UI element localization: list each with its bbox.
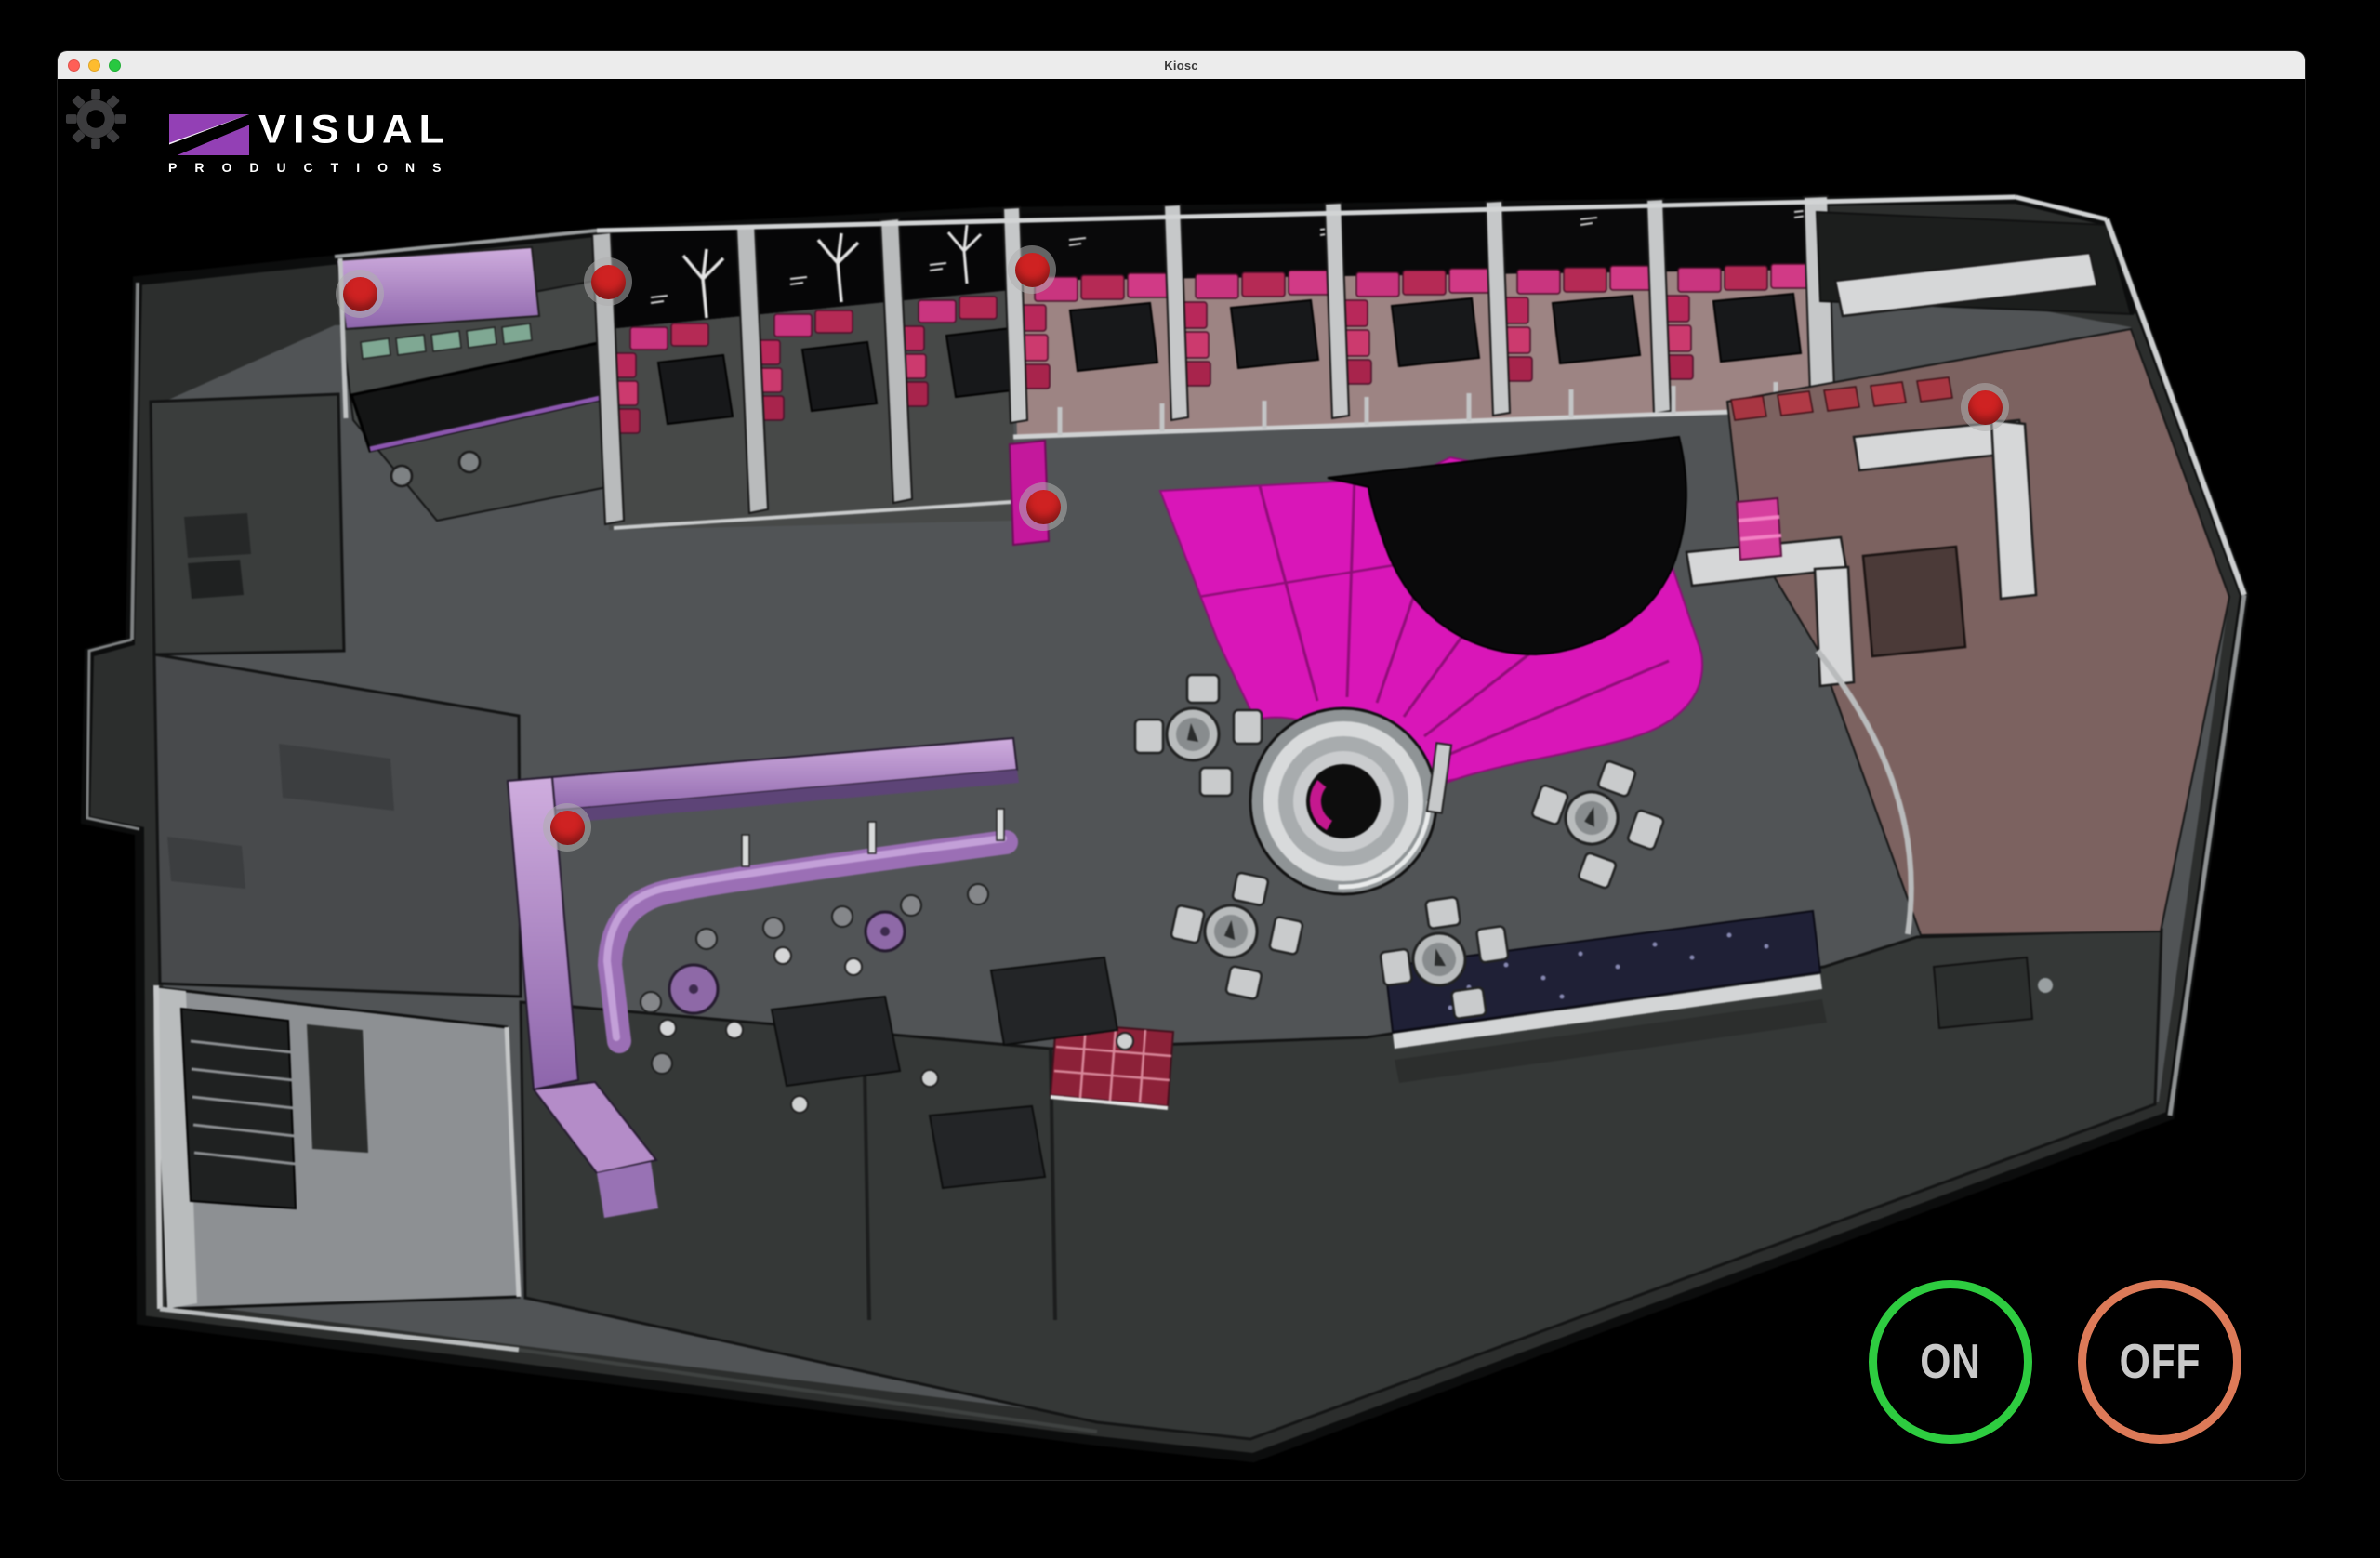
kitchen-room <box>153 987 519 1309</box>
zone-indicator-dot[interactable] <box>1008 245 1056 294</box>
window-title: Kiosc <box>58 59 2305 73</box>
off-button-label: OFF <box>2119 1334 2201 1390</box>
zoom-button[interactable] <box>109 59 121 72</box>
traffic-lights <box>58 59 121 72</box>
kiosc-window: Kiosc <box>58 51 2305 1480</box>
booth-row-left <box>592 212 1021 530</box>
minimize-button[interactable] <box>88 59 100 72</box>
lights-on-button[interactable]: ON <box>1869 1280 2032 1444</box>
zone-indicator-dot[interactable] <box>1019 482 1067 531</box>
kiosc-content: VISUAL PRODUCTIONS ON OFF <box>58 79 2305 1480</box>
booth-row-right <box>1003 196 1835 437</box>
logo-mark-icon <box>169 114 249 155</box>
brand-wordmark: VISUAL <box>258 107 451 152</box>
zone-indicator-dot[interactable] <box>1961 383 2009 431</box>
brand-subtitle: PRODUCTIONS <box>168 160 458 175</box>
zone-indicator-dot[interactable] <box>336 270 384 318</box>
zone-indicator-dot[interactable] <box>543 803 591 852</box>
visual-productions-logo: VISUAL PRODUCTIONS <box>167 109 488 179</box>
titlebar[interactable]: Kiosc <box>58 51 2305 79</box>
zone-indicator-dot[interactable] <box>584 257 632 306</box>
settings-gear-icon[interactable] <box>65 88 126 150</box>
floorplan-rendering <box>58 79 2305 1480</box>
vip-room <box>1817 212 2133 316</box>
close-button[interactable] <box>68 59 80 72</box>
on-button-label: ON <box>1920 1334 1981 1390</box>
lights-off-button[interactable]: OFF <box>2078 1280 2241 1444</box>
